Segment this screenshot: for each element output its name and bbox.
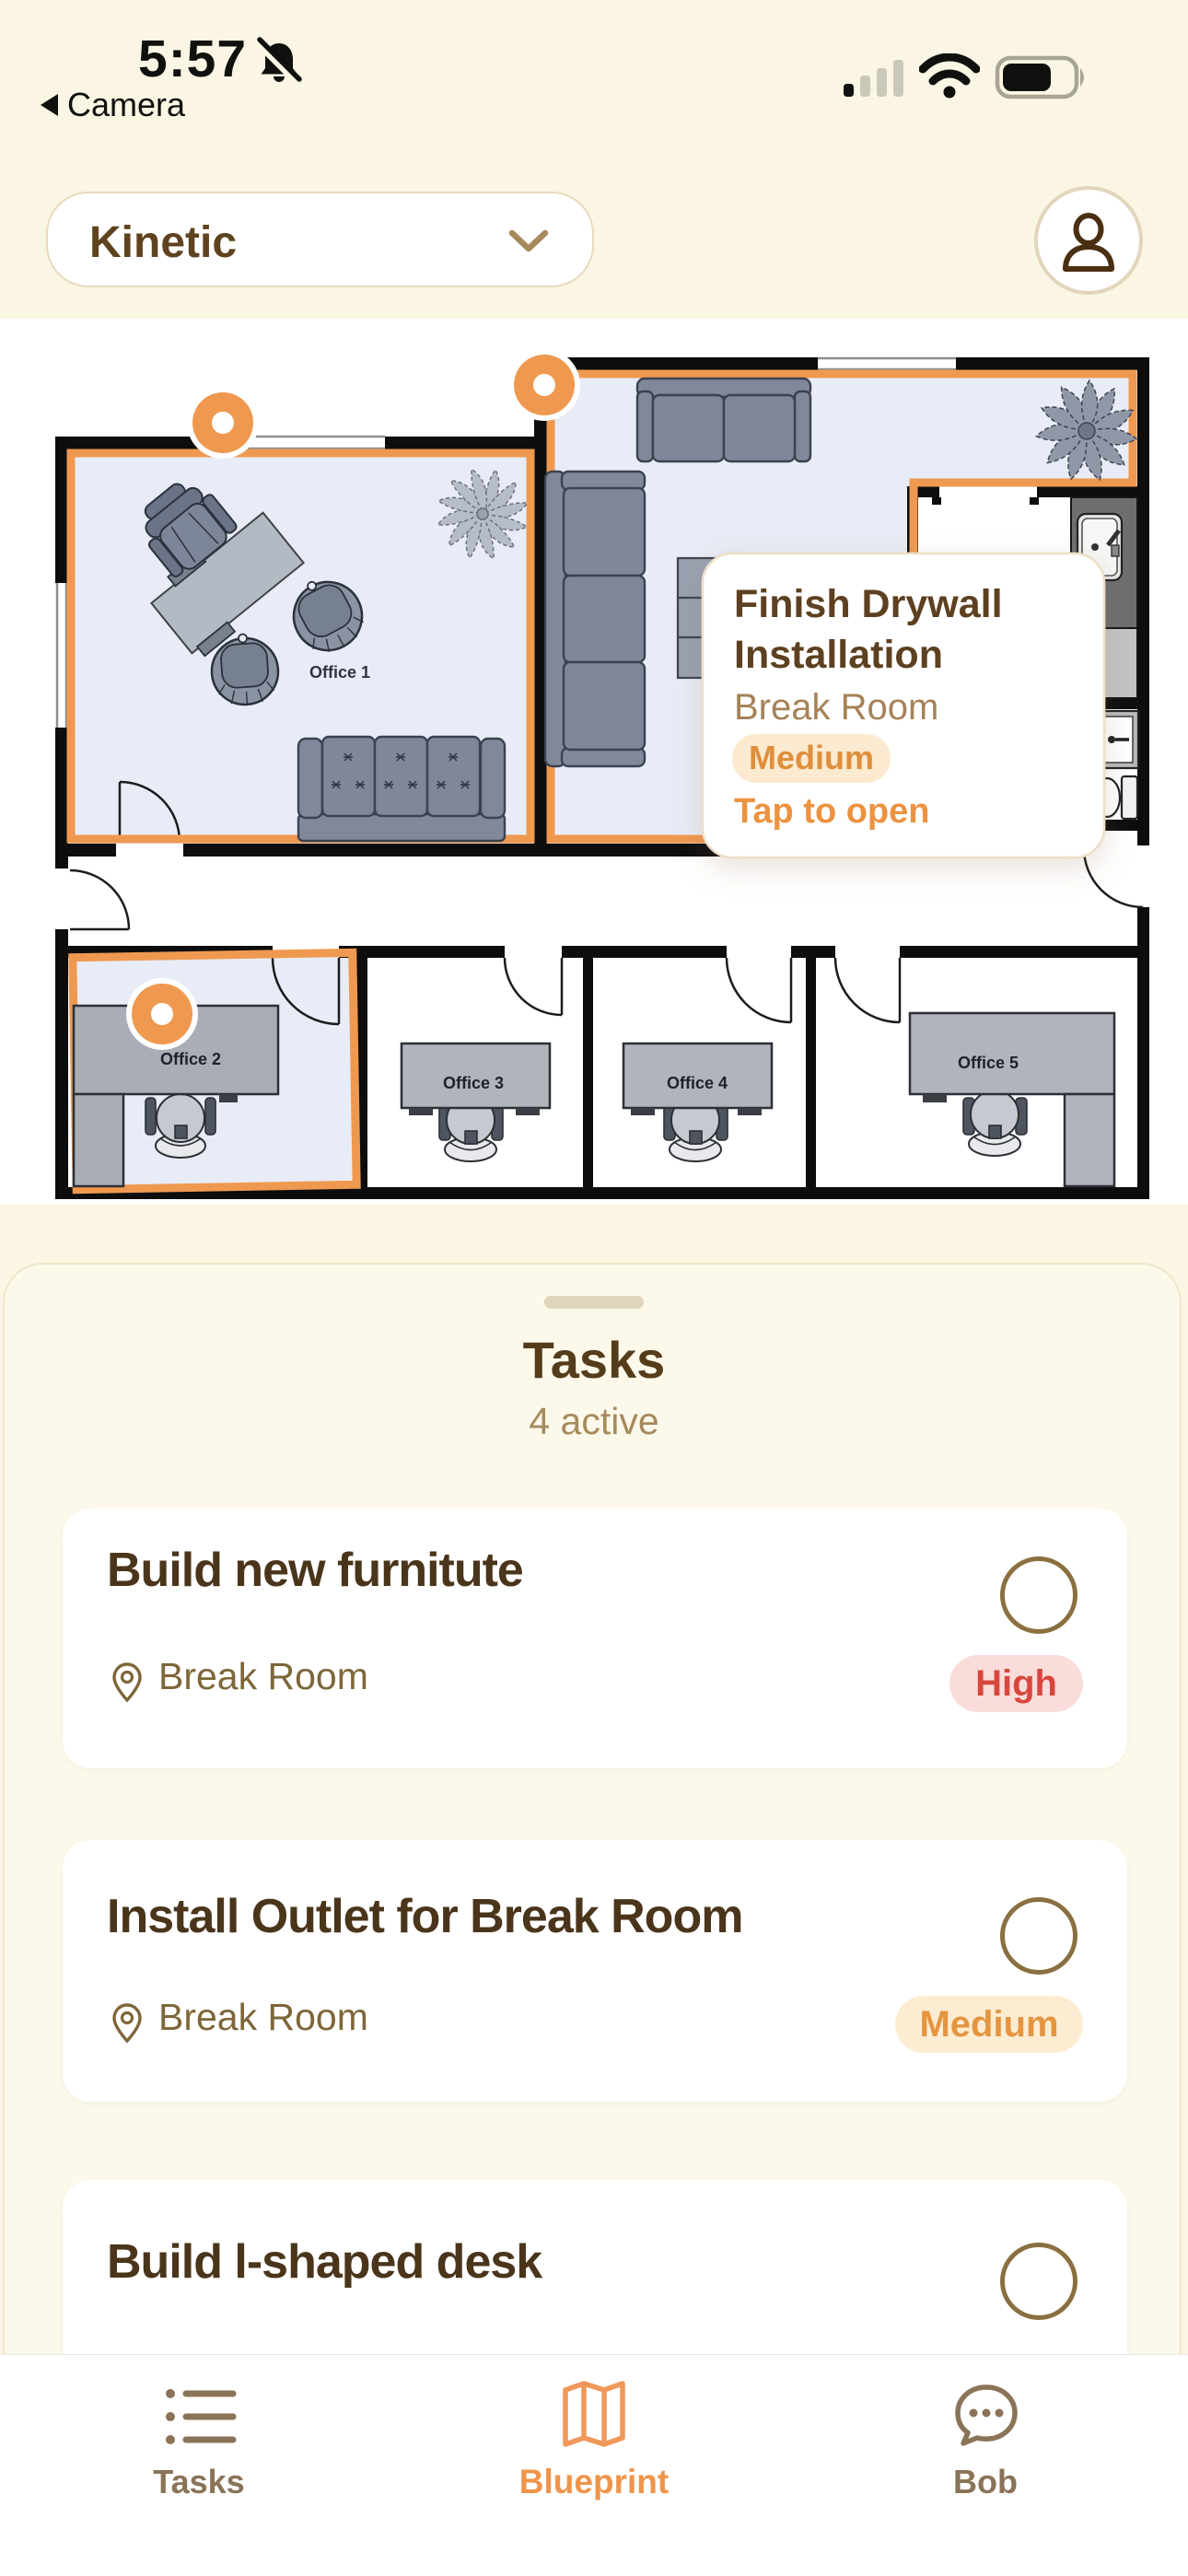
svg-text:Office 5: Office 5 (958, 1054, 1019, 1072)
svg-text:Office 2: Office 2 (160, 1050, 221, 1068)
svg-text:Break Room: Break Room (734, 687, 938, 728)
svg-text:Office 4: Office 4 (667, 1074, 728, 1092)
svg-text:Office 3: Office 3 (443, 1074, 504, 1092)
svg-text:Medium: Medium (749, 739, 874, 776)
svg-text:Tap to open: Tap to open (734, 792, 930, 831)
svg-text:Installation: Installation (734, 633, 943, 677)
svg-text:Office 1: Office 1 (309, 663, 370, 682)
svg-text:Finish Drywall: Finish Drywall (734, 582, 1003, 626)
